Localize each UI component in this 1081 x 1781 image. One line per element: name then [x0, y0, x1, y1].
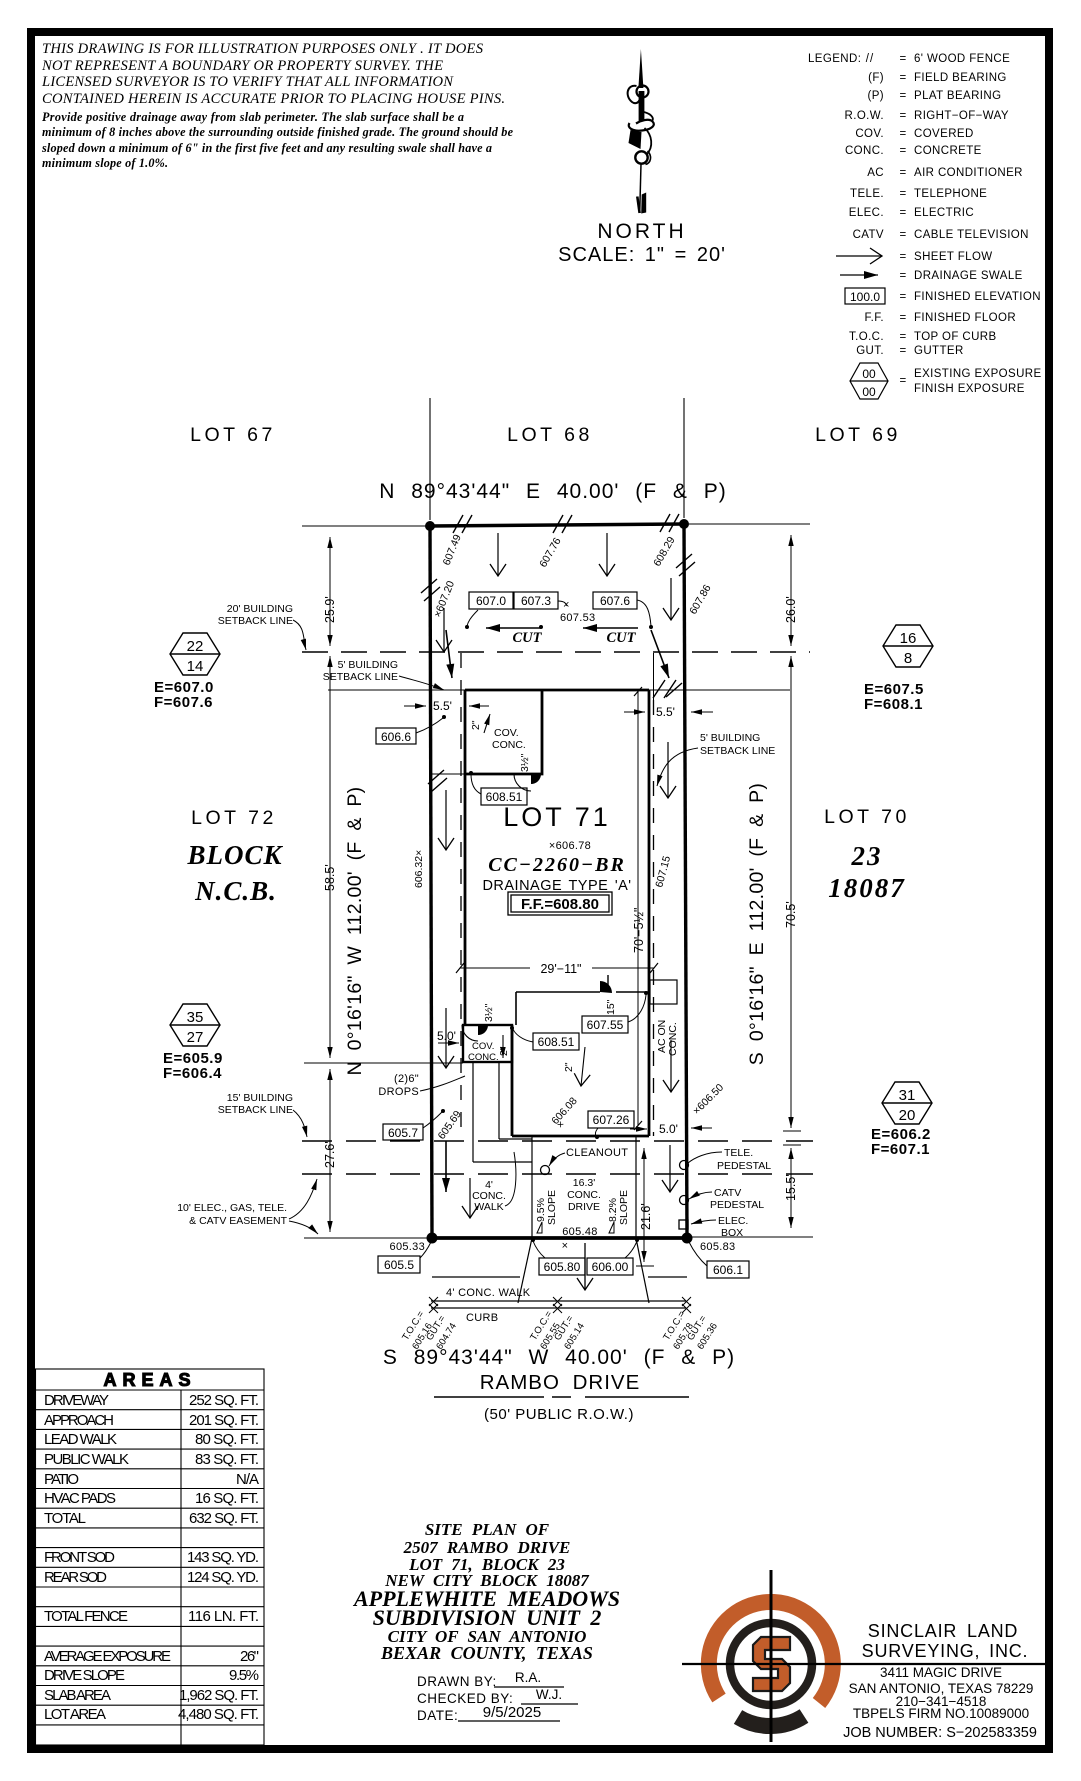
svg-text:DRIVEWAY: DRIVEWAY: [44, 1392, 109, 1409]
svg-text:R.O.W.: R.O.W.: [845, 110, 884, 122]
svg-text:3½": 3½": [483, 1003, 495, 1022]
svg-text:=: =: [899, 291, 906, 303]
svg-text:9/5/2025: 9/5/2025: [483, 1704, 541, 1721]
svg-text:(F): (F): [868, 72, 884, 84]
svg-text:605.5: 605.5: [384, 1258, 414, 1272]
svg-text:TELE.: TELE.: [850, 188, 884, 200]
svg-text:5' BUILDING: 5' BUILDING: [700, 732, 760, 744]
svg-text:10' ELEC., GAS, TELE.: 10' ELEC., GAS, TELE.: [177, 1202, 287, 1214]
svg-text:Provide positive drainage away: Provide positive drainage away from slab…: [42, 110, 464, 124]
svg-text:CATV: CATV: [714, 1187, 741, 1199]
svg-text:NOT REPRESENT A BOUNDARY OR PR: NOT REPRESENT A BOUNDARY OR PROPERTY SUR…: [41, 58, 443, 74]
svg-text:DATE:: DATE:: [417, 1708, 458, 1723]
svg-text:BEXAR COUNTY, TEXAS: BEXAR COUNTY, TEXAS: [380, 1643, 593, 1663]
svg-text:=: =: [899, 345, 906, 357]
svg-text:2": 2": [470, 720, 482, 730]
svg-text:606.00: 606.00: [592, 1260, 629, 1274]
svg-text:F=607.1: F=607.1: [871, 1141, 930, 1158]
svg-text:16: 16: [900, 630, 917, 647]
svg-text:SLOPE: SLOPE: [546, 1190, 558, 1225]
svg-text:16.3': 16.3': [573, 1177, 595, 1189]
svg-text:FINISHED FLOOR: FINISHED FLOOR: [914, 312, 1016, 324]
svg-text:607.53: 607.53: [560, 612, 595, 624]
svg-text:AC: AC: [867, 167, 884, 179]
svg-text:632 SQ. FT.: 632 SQ. FT.: [189, 1510, 259, 1527]
svg-text:70.5': 70.5': [784, 901, 798, 928]
svg-text:PEDESTAL: PEDESTAL: [717, 1160, 771, 1172]
svg-text:SETBACK LINE: SETBACK LINE: [218, 1104, 293, 1116]
svg-text:35: 35: [187, 1009, 204, 1026]
svg-text:607.86: 607.86: [687, 583, 714, 617]
svg-text:CONC.: CONC.: [667, 1022, 679, 1056]
svg-text:00: 00: [862, 367, 876, 381]
svg-text:R.A.: R.A.: [515, 1670, 541, 1685]
svg-text:=: =: [899, 331, 906, 343]
svg-text:LICENSED SURVEYOR IS TO VERIFY: LICENSED SURVEYOR IS TO VERIFY THAT ALL …: [41, 74, 454, 90]
svg-text:PLAT BEARING: PLAT BEARING: [914, 90, 1001, 102]
svg-text:CONC.: CONC.: [492, 739, 526, 751]
svg-text:143 SQ. YD.: 143 SQ. YD.: [187, 1549, 259, 1566]
svg-text:605.7: 605.7: [388, 1126, 418, 1140]
svg-text:×: ×: [562, 1240, 569, 1252]
svg-text:5.5': 5.5': [433, 699, 452, 713]
svg-text:=: =: [899, 312, 906, 324]
svg-text:606.6: 606.6: [381, 730, 411, 744]
svg-text:607.55: 607.55: [587, 1018, 624, 1032]
svg-text:16 SQ. FT.: 16 SQ. FT.: [195, 1490, 259, 1507]
svg-text:TOP OF CURB: TOP OF CURB: [914, 331, 997, 343]
svg-text:15' BUILDING: 15' BUILDING: [227, 1092, 293, 1104]
svg-text:607.0: 607.0: [476, 594, 506, 608]
svg-text:FIELD BEARING: FIELD BEARING: [914, 72, 1007, 84]
svg-text:=: =: [899, 110, 906, 122]
svg-text:252 SQ. FT.: 252 SQ. FT.: [189, 1392, 259, 1409]
svg-text:=: =: [899, 375, 906, 387]
svg-text:6' WOOD FENCE: 6' WOOD FENCE: [914, 53, 1010, 65]
svg-text:minimum of 8 inches above the: minimum of 8 inches above the surroundin…: [42, 125, 514, 139]
svg-text:TOTAL: TOTAL: [44, 1510, 86, 1527]
svg-text:5.0': 5.0': [437, 1029, 456, 1043]
svg-text:LOT 70: LOT 70: [824, 806, 910, 828]
svg-text:607.76: 607.76: [537, 536, 564, 570]
svg-text:=: =: [899, 90, 906, 102]
svg-text:5.0': 5.0': [659, 1122, 678, 1136]
svg-text:LOT AREA: LOT AREA: [44, 1706, 106, 1723]
svg-text:FINISHED ELEVATION: FINISHED ELEVATION: [914, 291, 1041, 303]
svg-text:APPROACH: APPROACH: [44, 1412, 114, 1429]
svg-text:(2)6": (2)6": [394, 1073, 419, 1085]
svg-text:=: =: [899, 72, 906, 84]
svg-text:SHEET FLOW: SHEET FLOW: [914, 251, 993, 263]
svg-text:W.J.: W.J.: [536, 1687, 562, 1702]
svg-text:605.48: 605.48: [562, 1226, 597, 1238]
svg-text:RAMBO DRIVE: RAMBO DRIVE: [480, 1371, 641, 1394]
svg-text:TELE.: TELE.: [724, 1147, 753, 1159]
svg-text:608.29: 608.29: [651, 535, 678, 569]
svg-text:CUT: CUT: [513, 630, 543, 646]
svg-text:minimum slope of 1.0%.: minimum slope of 1.0%.: [42, 156, 168, 170]
svg-text:607.6: 607.6: [600, 594, 630, 608]
svg-text:607.49: 607.49: [441, 533, 464, 567]
svg-text:3½": 3½": [519, 753, 531, 772]
svg-text:F.F.=608.80: F.F.=608.80: [521, 896, 599, 913]
svg-text:4' CONC. WALK: 4' CONC. WALK: [446, 1287, 531, 1299]
svg-text:LOT 69: LOT 69: [815, 424, 901, 446]
svg-text:JOB NUMBER: S−202583359: JOB NUMBER: S−202583359: [843, 1725, 1037, 1741]
svg-text:5.5': 5.5': [656, 705, 675, 719]
svg-text:116 LN. FT.: 116 LN. FT.: [188, 1608, 259, 1625]
svg-text:00: 00: [862, 385, 876, 399]
svg-text:22: 22: [187, 638, 204, 655]
svg-text:CABLE TELEVISION: CABLE TELEVISION: [914, 229, 1029, 241]
svg-text:21.6': 21.6': [639, 1203, 653, 1230]
svg-text:4,480 SQ. FT.: 4,480 SQ. FT.: [178, 1706, 259, 1723]
svg-text:DRIVE SLOPE: DRIVE SLOPE: [44, 1667, 125, 1684]
svg-text:LEAD WALK: LEAD WALK: [44, 1431, 117, 1448]
svg-text:SURVEYING, INC.: SURVEYING, INC.: [862, 1641, 1029, 1661]
svg-text:29'−11": 29'−11": [540, 962, 581, 976]
svg-text:COV.: COV.: [472, 1041, 494, 1052]
svg-text:×606.78: ×606.78: [549, 840, 591, 852]
svg-text:NORTH: NORTH: [597, 220, 686, 243]
svg-text:23: 23: [851, 841, 883, 871]
svg-text:RIGHT−OF−WAY: RIGHT−OF−WAY: [914, 110, 1009, 122]
svg-text:CURB: CURB: [466, 1312, 498, 1324]
svg-text:26": 26": [240, 1648, 259, 1665]
svg-text:TELEPHONE: TELEPHONE: [914, 188, 987, 200]
svg-text:AREAS: AREAS: [103, 1370, 196, 1390]
svg-text:607.26: 607.26: [593, 1113, 630, 1127]
svg-text:100.0: 100.0: [850, 290, 880, 304]
svg-text:=: =: [899, 145, 906, 157]
svg-text:CONTAINED HEREIN IS ACCURATE P: CONTAINED HEREIN IS ACCURATE PRIOR TO PL…: [42, 91, 505, 107]
svg-text:27: 27: [187, 1029, 204, 1046]
svg-text:FINISH EXPOSURE: FINISH EXPOSURE: [914, 383, 1025, 395]
svg-text:(50' PUBLIC R.O.W.): (50' PUBLIC R.O.W.): [484, 1406, 634, 1423]
svg-text:PATIO: PATIO: [44, 1471, 79, 1488]
svg-text:608.51: 608.51: [538, 1035, 575, 1049]
svg-text:LOT 67: LOT 67: [190, 424, 276, 446]
svg-text:ELEC.: ELEC.: [718, 1215, 748, 1227]
svg-text:SLAB AREA: SLAB AREA: [44, 1687, 111, 1704]
svg-text:1,962 SQ. FT.: 1,962 SQ. FT.: [179, 1687, 259, 1704]
svg-text:SETBACK LINE: SETBACK LINE: [700, 745, 775, 757]
svg-text:CC−2260−BR: CC−2260−BR: [488, 854, 626, 876]
svg-text:15": 15": [605, 999, 617, 1015]
svg-text:T.O.C.: T.O.C.: [849, 331, 884, 343]
svg-text:20: 20: [899, 1107, 916, 1124]
svg-text:=: =: [899, 188, 906, 200]
svg-text:=: =: [899, 251, 906, 263]
svg-text:CONC.: CONC.: [468, 1052, 499, 1063]
svg-text:605.33: 605.33: [390, 1241, 425, 1253]
svg-text:605.80: 605.80: [544, 1260, 581, 1274]
svg-text:GUT.: GUT.: [856, 345, 884, 357]
svg-text:EXISTING EXPOSURE: EXISTING EXPOSURE: [914, 368, 1042, 380]
svg-text:201 SQ. FT.: 201 SQ. FT.: [189, 1412, 259, 1429]
svg-text:FRONT SOD: FRONT SOD: [44, 1549, 115, 1566]
svg-text:TOTAL FENCE: TOTAL FENCE: [44, 1608, 128, 1625]
svg-text:26.0': 26.0': [784, 596, 798, 623]
svg-text:=: =: [899, 53, 906, 65]
svg-text:25.9': 25.9': [323, 596, 337, 623]
svg-text:N/A: N/A: [236, 1471, 259, 1488]
svg-text:sloped down a minimum of 6" in: sloped down a minimum of 6" in the first…: [41, 141, 492, 155]
svg-text:=: =: [899, 270, 906, 282]
svg-text:=: =: [899, 229, 906, 241]
svg-text:=: =: [899, 207, 906, 219]
svg-text:83 SQ. FT.: 83 SQ. FT.: [195, 1451, 259, 1468]
svg-text:70'−5½": 70'−5½": [632, 908, 646, 953]
svg-text:20' BUILDING: 20' BUILDING: [227, 603, 293, 615]
svg-text:31: 31: [899, 1087, 916, 1104]
svg-text:DRIVE: DRIVE: [568, 1201, 600, 1213]
svg-text:BOX: BOX: [721, 1227, 743, 1239]
svg-text://: //: [866, 53, 874, 65]
svg-text:(P): (P): [867, 90, 884, 102]
svg-text:605.83: 605.83: [700, 1241, 735, 1253]
svg-text:124 SQ. YD.: 124 SQ. YD.: [187, 1569, 259, 1586]
svg-text:9.5%: 9.5%: [229, 1667, 259, 1684]
svg-text:F=606.4: F=606.4: [163, 1065, 222, 1082]
svg-text:HVAC PADS: HVAC PADS: [44, 1490, 116, 1507]
svg-text:AIR CONDITIONER: AIR CONDITIONER: [914, 167, 1023, 179]
svg-text:N 0°16'16" W 112.00' (F & P): N 0°16'16" W 112.00' (F & P): [344, 787, 366, 1076]
svg-text:CONC.: CONC.: [567, 1189, 601, 1201]
svg-text:DROPS: DROPS: [378, 1086, 419, 1098]
svg-text:80 SQ. FT.: 80 SQ. FT.: [195, 1431, 259, 1448]
svg-text:2": 2": [563, 1062, 575, 1072]
svg-text:606.32×: 606.32×: [413, 850, 425, 888]
svg-text:F=608.1: F=608.1: [864, 696, 923, 713]
svg-text:ELEC.: ELEC.: [849, 207, 884, 219]
svg-text:SINCLAIR LAND: SINCLAIR LAND: [868, 1621, 1018, 1641]
svg-text:LOT 68: LOT 68: [507, 424, 593, 446]
svg-text:=: =: [899, 128, 906, 140]
svg-text:CATV: CATV: [853, 229, 884, 241]
svg-text:606.1: 606.1: [713, 1263, 743, 1277]
svg-text:CUT: CUT: [607, 630, 637, 646]
svg-text:PUBLIC WALK: PUBLIC WALK: [44, 1451, 129, 1468]
svg-text:GUTTER: GUTTER: [914, 345, 964, 357]
svg-text:LEGEND:: LEGEND:: [808, 53, 861, 65]
svg-text:F=607.6: F=607.6: [154, 694, 213, 711]
svg-text:COV.: COV.: [855, 128, 884, 140]
svg-text:BLOCK: BLOCK: [186, 840, 283, 870]
svg-text:8: 8: [904, 650, 912, 667]
svg-text:CONCRETE: CONCRETE: [914, 145, 982, 157]
svg-text:AVERAGE EXPOSURE: AVERAGE EXPOSURE: [44, 1648, 171, 1665]
svg-text:COVERED: COVERED: [914, 128, 974, 140]
svg-text:S 89°43'44" W 40.00' (F & P): S 89°43'44" W 40.00' (F & P): [383, 1346, 735, 1369]
svg-text:18087: 18087: [828, 873, 906, 903]
svg-text:N 89°43'44" E 40.00' (F & P): N 89°43'44" E 40.00' (F & P): [379, 480, 727, 503]
svg-text:607.3: 607.3: [521, 594, 551, 608]
svg-text:2": 2": [498, 1046, 510, 1056]
svg-text:TBPELS FIRM NO.10089000: TBPELS FIRM NO.10089000: [853, 1706, 1029, 1721]
svg-text:COV.: COV.: [494, 727, 519, 739]
svg-text:DRAINAGE SWALE: DRAINAGE SWALE: [914, 270, 1023, 282]
svg-text:LOT 71: LOT 71: [503, 802, 611, 832]
svg-text:=: =: [899, 167, 906, 179]
svg-text:3411 MAGIC DRIVE: 3411 MAGIC DRIVE: [880, 1665, 1002, 1680]
svg-text:58.5': 58.5': [323, 864, 337, 891]
svg-text:ELECTRIC: ELECTRIC: [914, 207, 974, 219]
svg-text:607.15: 607.15: [653, 854, 673, 888]
svg-text:PEDESTAL: PEDESTAL: [710, 1199, 764, 1211]
svg-text:CLEANOUT: CLEANOUT: [566, 1147, 628, 1159]
svg-text:WALK: WALK: [474, 1201, 503, 1213]
svg-text:THIS DRAWING IS FOR ILLUSTRATI: THIS DRAWING IS FOR ILLUSTRATION PURPOSE…: [42, 41, 484, 57]
svg-text:S 0°16'16" E 112.00' (F & P): S 0°16'16" E 112.00' (F & P): [746, 783, 768, 1065]
svg-text:SITE PLAN OF: SITE PLAN OF: [425, 1520, 550, 1539]
svg-text:SETBACK LINE: SETBACK LINE: [218, 615, 293, 627]
svg-text:& CATV EASEMENT: & CATV EASEMENT: [189, 1215, 287, 1227]
svg-text:14: 14: [187, 658, 204, 675]
svg-text:SCALE: 1" = 20': SCALE: 1" = 20': [558, 244, 726, 266]
svg-text:N.C.B.: N.C.B.: [194, 876, 277, 906]
svg-text:LOT 72: LOT 72: [191, 807, 277, 829]
svg-text:CONC.: CONC.: [845, 145, 884, 157]
svg-text:27.6': 27.6': [323, 1141, 337, 1168]
svg-text:×606.50: ×606.50: [691, 1081, 727, 1117]
svg-text:15.5': 15.5': [784, 1174, 798, 1201]
svg-text:SLOPE: SLOPE: [618, 1190, 630, 1225]
svg-text:DRAWN BY:: DRAWN BY:: [417, 1674, 497, 1689]
svg-text:REAR SOD: REAR SOD: [44, 1569, 107, 1586]
svg-text:5' BUILDING: 5' BUILDING: [338, 659, 398, 671]
svg-text:SETBACK LINE: SETBACK LINE: [323, 671, 398, 683]
svg-text:F.F.: F.F.: [865, 312, 885, 324]
